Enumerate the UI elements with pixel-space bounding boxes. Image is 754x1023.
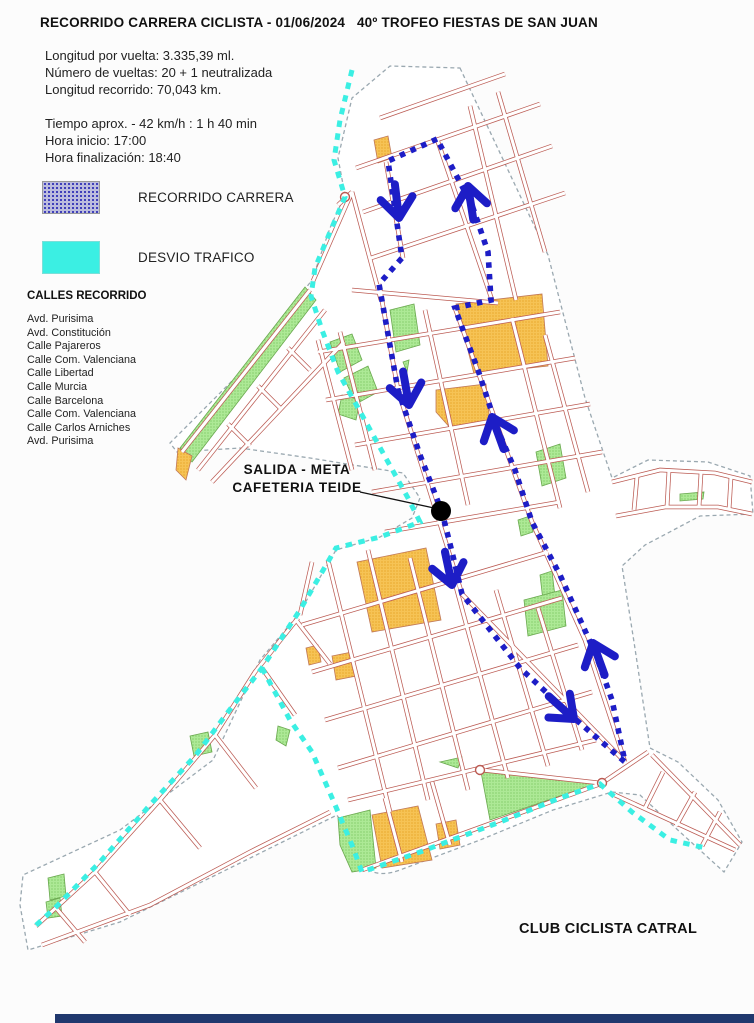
street-item: Calle Carlos Arniches (27, 422, 136, 436)
street-item: Avd. Constitución (27, 327, 136, 341)
start-finish-label-line2: CAFETERIA TEIDE (232, 480, 361, 495)
street-item: Calle Murcia (27, 381, 136, 395)
street-item: Calle Pajareros (27, 340, 136, 354)
route-poster: SALIDA - META CAFETERIA TEIDE RECORRIDO … (0, 0, 754, 1023)
start-finish-marker (431, 501, 451, 521)
stat-total-length: Longitud recorrido: 70,043 km. (45, 81, 272, 98)
race-time-block: Tiempo aprox. - 42 km/h : 1 h 40 min Hor… (45, 115, 257, 166)
streets-list-heading: CALLES RECORRIDO (27, 290, 146, 302)
diversion-swatch (42, 241, 100, 274)
footer-bar (55, 1014, 754, 1023)
street-item: Avd. Purisima (27, 313, 136, 327)
legend-label-diversion: DESVIO TRAFICO (138, 250, 255, 265)
poster-title: RECORRIDO CARRERA CICLISTA - 01/06/2024 … (40, 15, 598, 30)
stat-start-time: Hora inicio: 17:00 (45, 132, 257, 149)
street-item: Avd. Purisima (27, 435, 136, 449)
streets-list: Avd. Purisima Avd. Constitución Calle Pa… (27, 313, 136, 449)
club-label: CLUB CICLISTA CATRAL (519, 921, 697, 937)
race-stats-block: Longitud por vuelta: 3.335,39 ml. Número… (45, 47, 272, 98)
street-item: Calle Com. Valenciana (27, 354, 136, 368)
street-item: Calle Libertad (27, 367, 136, 381)
street-item: Calle Barcelona (27, 395, 136, 409)
street-item: Calle Com. Valenciana (27, 408, 136, 422)
stat-approx-time: Tiempo aprox. - 42 km/h : 1 h 40 min (45, 115, 257, 132)
legend-item-route: RECORRIDO CARRERA (42, 181, 294, 214)
start-finish-label-line1: SALIDA - META (244, 462, 351, 477)
route-swatch (42, 181, 100, 214)
stat-lap-length: Longitud por vuelta: 3.335,39 ml. (45, 47, 272, 64)
stat-end-time: Hora finalización: 18:40 (45, 149, 257, 166)
legend-label-route: RECORRIDO CARRERA (138, 190, 294, 205)
stat-lap-count: Número de vueltas: 20 + 1 neutralizada (45, 64, 272, 81)
legend-item-diversion: DESVIO TRAFICO (42, 241, 255, 274)
